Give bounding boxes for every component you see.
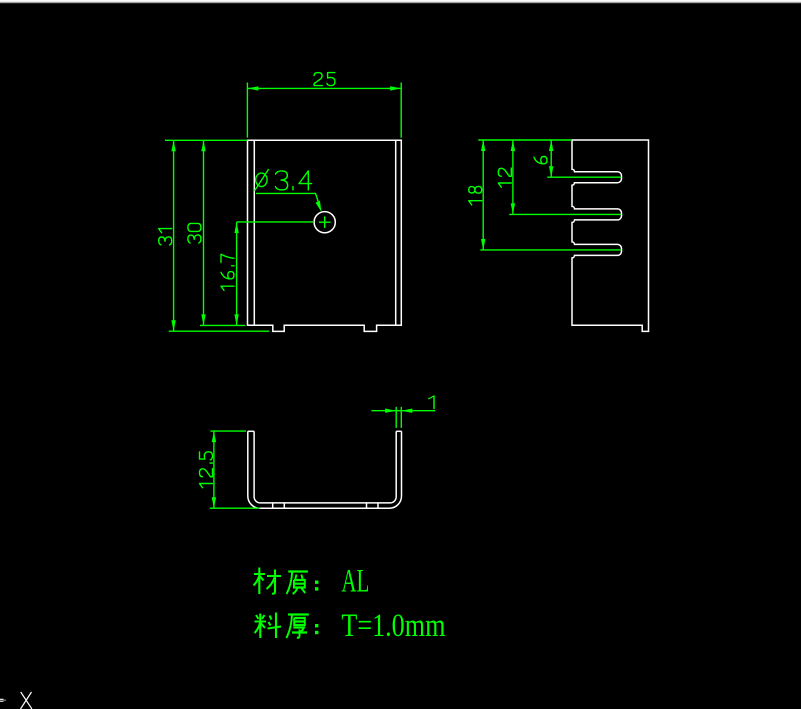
svg-text:T=1.0mm: T=1.0mm [341,608,445,644]
svg-text:AL: AL [341,564,369,600]
